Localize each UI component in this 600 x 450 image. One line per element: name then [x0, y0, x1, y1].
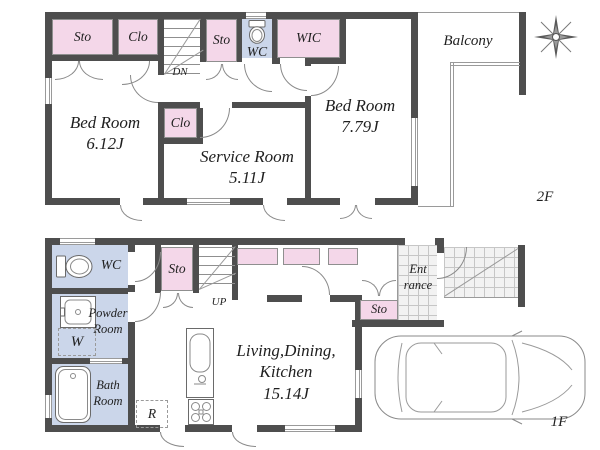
wall: [352, 320, 444, 327]
entrance-line2: rance: [399, 278, 437, 294]
wall: [307, 58, 346, 64]
bedroom-a-area: 6.12J: [50, 133, 160, 154]
window: [45, 78, 52, 104]
door-arc: [232, 432, 256, 447]
wall: [128, 285, 135, 292]
wall: [95, 238, 405, 245]
room-label-ldk: Living,Dining, Kitchen 15.14J: [211, 340, 361, 404]
room-label-bedroom-b: Bed Room 7.79J: [312, 95, 408, 138]
window: [246, 12, 266, 19]
room-label-wc-1f: WC: [94, 257, 128, 274]
room-label-sto-a-2f: Sto: [74, 29, 91, 46]
door-arc: [55, 61, 79, 80]
casement-window-arc: [340, 205, 356, 219]
washing-machine-space: W: [58, 328, 96, 356]
room-label-clo-a-2f: Clo: [128, 29, 148, 46]
service-room-name: Service Room: [182, 146, 312, 167]
porch-edge: [444, 297, 518, 298]
wall: [519, 12, 526, 95]
wall: [185, 425, 232, 432]
wall: [257, 425, 285, 432]
door-arc: [280, 64, 307, 91]
entrance-line1: Ent: [399, 262, 437, 278]
wall: [232, 102, 311, 108]
room-label-sto-a-1f: Sto: [168, 261, 185, 278]
door-arc: [163, 293, 178, 308]
bedroom-b-name: Bed Room: [312, 95, 408, 116]
wall: [340, 12, 346, 58]
bath-line1: Bath: [86, 378, 130, 394]
toilet-icon: [56, 250, 94, 283]
casement-window-arc: [356, 205, 372, 219]
wall-closet-strip: [328, 248, 358, 265]
ldk-line1: Living,Dining,: [211, 340, 361, 361]
door-arc: [130, 75, 158, 103]
room-label-clo-b-2f: Clo: [171, 115, 191, 132]
door-arc: [200, 108, 230, 138]
balcony-railing: [453, 62, 454, 207]
room-label-sto-b-2f: Sto: [213, 32, 230, 49]
ldk-line2: Kitchen: [211, 361, 361, 382]
casement-window-arc: [120, 205, 142, 221]
wall: [435, 238, 444, 245]
fridge-label: R: [148, 406, 156, 422]
room-label-sto-b-1f: Sto: [371, 302, 387, 318]
room-label-bath: Bath Room: [86, 378, 130, 409]
door-arc: [178, 293, 193, 308]
room-storage-a-1f: Sto: [161, 247, 193, 291]
compass-icon: [533, 14, 579, 60]
door-arc: [79, 61, 103, 80]
powder-line1: Powder: [86, 306, 130, 322]
ldk-area: 15.14J: [211, 383, 361, 404]
service-room-area: 5.11J: [182, 167, 312, 188]
balcony-railing: [450, 65, 520, 66]
bedroom-a-name: Bed Room: [50, 112, 160, 133]
wall: [518, 245, 525, 307]
stairs-up-label: UP: [204, 296, 234, 310]
window: [60, 238, 95, 245]
car-icon: [372, 330, 588, 425]
balcony-label: Balcony: [418, 32, 518, 51]
refrigerator-space: R: [136, 400, 168, 428]
door-arc: [135, 292, 161, 322]
room-storage-b-1f: Sto: [360, 300, 398, 320]
wall: [230, 198, 263, 205]
toilet-icon: [246, 20, 268, 44]
room-closet-b-2f: Clo: [164, 108, 197, 138]
door-arc: [311, 66, 339, 96]
door-arc: [362, 280, 379, 296]
room-storage-b-2f: Sto: [206, 19, 237, 62]
wall: [411, 186, 418, 205]
window: [45, 395, 52, 418]
window: [187, 198, 230, 205]
wall: [45, 198, 120, 205]
balcony-railing: [450, 62, 451, 207]
room-label-service-room: Service Room 5.11J: [182, 146, 312, 189]
door-arc: [379, 280, 396, 296]
room-label-bedroom-a: Bed Room 6.12J: [50, 112, 160, 155]
wall: [45, 238, 52, 395]
wall: [330, 295, 362, 302]
stairs-dn-label: DN: [165, 66, 195, 80]
room-label-wic-2f: WIC: [296, 30, 321, 47]
washer-label: W: [71, 334, 84, 351]
wall: [128, 245, 135, 252]
wall: [143, 198, 187, 205]
room-wic-2f: WIC: [277, 19, 340, 58]
floor-1f-label: 1F: [542, 413, 576, 432]
room-label-wc-2f: WC: [240, 44, 274, 61]
wall-closet-strip: [237, 248, 278, 265]
floor-2f-label: 2F: [528, 188, 562, 207]
balcony-railing: [418, 206, 453, 207]
door-arc: [206, 64, 222, 80]
bedroom-b-area: 7.79J: [312, 116, 408, 137]
wall: [411, 12, 418, 118]
bath-line2: Room: [86, 394, 130, 410]
door-arc: [160, 432, 184, 447]
entrance-label: Ent rance: [399, 262, 437, 293]
casement-window-arc: [263, 205, 285, 221]
door-arc: [302, 266, 330, 295]
door-arc: [244, 64, 272, 92]
wall: [267, 295, 302, 302]
door-arc: [222, 64, 238, 80]
wall: [158, 138, 203, 144]
balcony-sliding-door: [411, 118, 418, 186]
floor-plan: Sto Clo Sto WC WIC Clo DN Balcony: [0, 0, 600, 450]
wall: [287, 198, 340, 205]
room-storage-a-2f: Sto: [52, 19, 113, 55]
window: [285, 425, 335, 432]
balcony-railing: [450, 62, 520, 63]
wall: [45, 12, 52, 78]
wall: [45, 12, 246, 19]
room-closet-a-2f: Clo: [118, 19, 158, 55]
balcony-edge: [418, 12, 526, 13]
wall: [128, 322, 135, 432]
kitchen-sink-icon: [186, 328, 214, 398]
wall-closet-strip: [283, 248, 320, 265]
